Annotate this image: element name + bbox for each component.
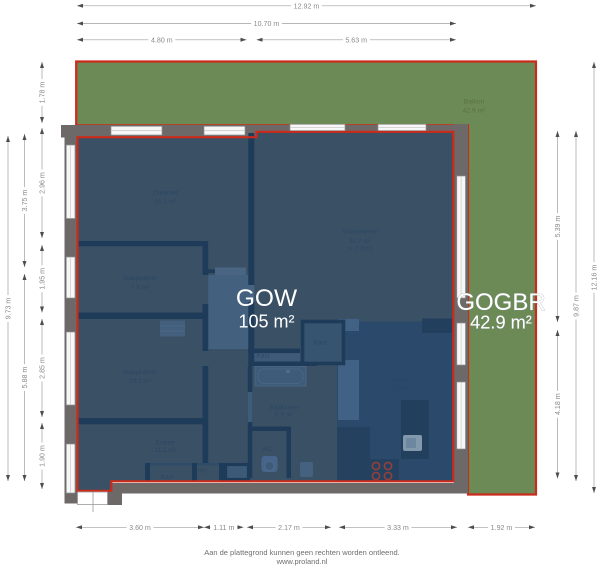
svg-text:2.17 m: 2.17 m xyxy=(278,524,300,532)
svg-text:42.9 m²: 42.9 m² xyxy=(462,108,486,115)
svg-text:4.80 m: 4.80 m xyxy=(151,36,173,44)
svg-text:Zitkamer: Zitkamer xyxy=(152,190,178,197)
svg-text:12.16 m: 12.16 m xyxy=(591,265,599,291)
svg-text:1.95 m: 1.95 m xyxy=(39,268,47,290)
svg-text:11.2 m²: 11.2 m² xyxy=(154,447,176,454)
svg-text:Entree: Entree xyxy=(155,440,175,447)
svg-text:10.70 m: 10.70 m xyxy=(254,20,280,28)
svg-text:Woonkamer: Woonkamer xyxy=(343,229,379,236)
svg-text:3.33 m: 3.33 m xyxy=(387,524,409,532)
svg-text:Slaapkamer: Slaapkamer xyxy=(123,275,159,282)
svg-text:9.87 m: 9.87 m xyxy=(573,295,581,317)
svg-text:GOW: GOW xyxy=(236,285,298,312)
svg-text:15.3 m²: 15.3 m² xyxy=(387,385,410,392)
svg-text:5.39 m: 5.39 m xyxy=(554,216,562,238)
svg-text:4.18 m: 4.18 m xyxy=(554,393,562,415)
svg-text:2.96 m: 2.96 m xyxy=(39,172,47,194)
svg-text:WC: WC xyxy=(198,469,207,475)
svg-text:10.1 m²: 10.1 m² xyxy=(129,378,152,385)
svg-text:(+ 2.7m²): (+ 2.7m²) xyxy=(348,247,373,253)
svg-text:1.78 m: 1.78 m xyxy=(39,82,47,104)
svg-text:Aan de plattegrond kunnen geen: Aan de plattegrond kunnen geen rechten w… xyxy=(204,548,400,557)
svg-text:Slaapkamer: Slaapkamer xyxy=(123,369,159,376)
svg-text:9.73 m: 9.73 m xyxy=(5,298,13,320)
svg-text:1.92 m: 1.92 m xyxy=(491,524,513,532)
svg-text:www.proland.nl: www.proland.nl xyxy=(276,557,328,566)
svg-text:3.75 m: 3.75 m xyxy=(21,190,29,212)
svg-text:Badkamer: Badkamer xyxy=(269,405,299,412)
svg-text:30.7 m²: 30.7 m² xyxy=(349,238,372,245)
svg-text:Balkon: Balkon xyxy=(464,99,485,106)
svg-text:Keuken: Keuken xyxy=(387,376,409,383)
svg-text:Kast: Kast xyxy=(256,353,269,360)
svg-text:Kast: Kast xyxy=(160,474,173,481)
svg-text:5.9 m²: 5.9 m² xyxy=(275,412,294,419)
svg-text:105 m²: 105 m² xyxy=(238,312,294,332)
svg-text:12.92 m: 12.92 m xyxy=(294,2,320,10)
svg-text:7.6 m²: 7.6 m² xyxy=(131,284,150,291)
svg-text:1.11 m: 1.11 m xyxy=(213,524,234,532)
svg-text:3.60 m: 3.60 m xyxy=(129,524,151,532)
svg-text:5.63 m: 5.63 m xyxy=(345,36,367,44)
svg-text:15.1 m²: 15.1 m² xyxy=(154,199,177,206)
svg-text:42.9 m²: 42.9 m² xyxy=(470,313,532,333)
svg-text:WC: WC xyxy=(262,446,273,453)
svg-text:5.88 m: 5.88 m xyxy=(21,367,29,389)
svg-text:2.85 m: 2.85 m xyxy=(39,357,47,379)
svg-text:1.90 m: 1.90 m xyxy=(39,445,47,467)
svg-text:Kast: Kast xyxy=(313,340,326,347)
